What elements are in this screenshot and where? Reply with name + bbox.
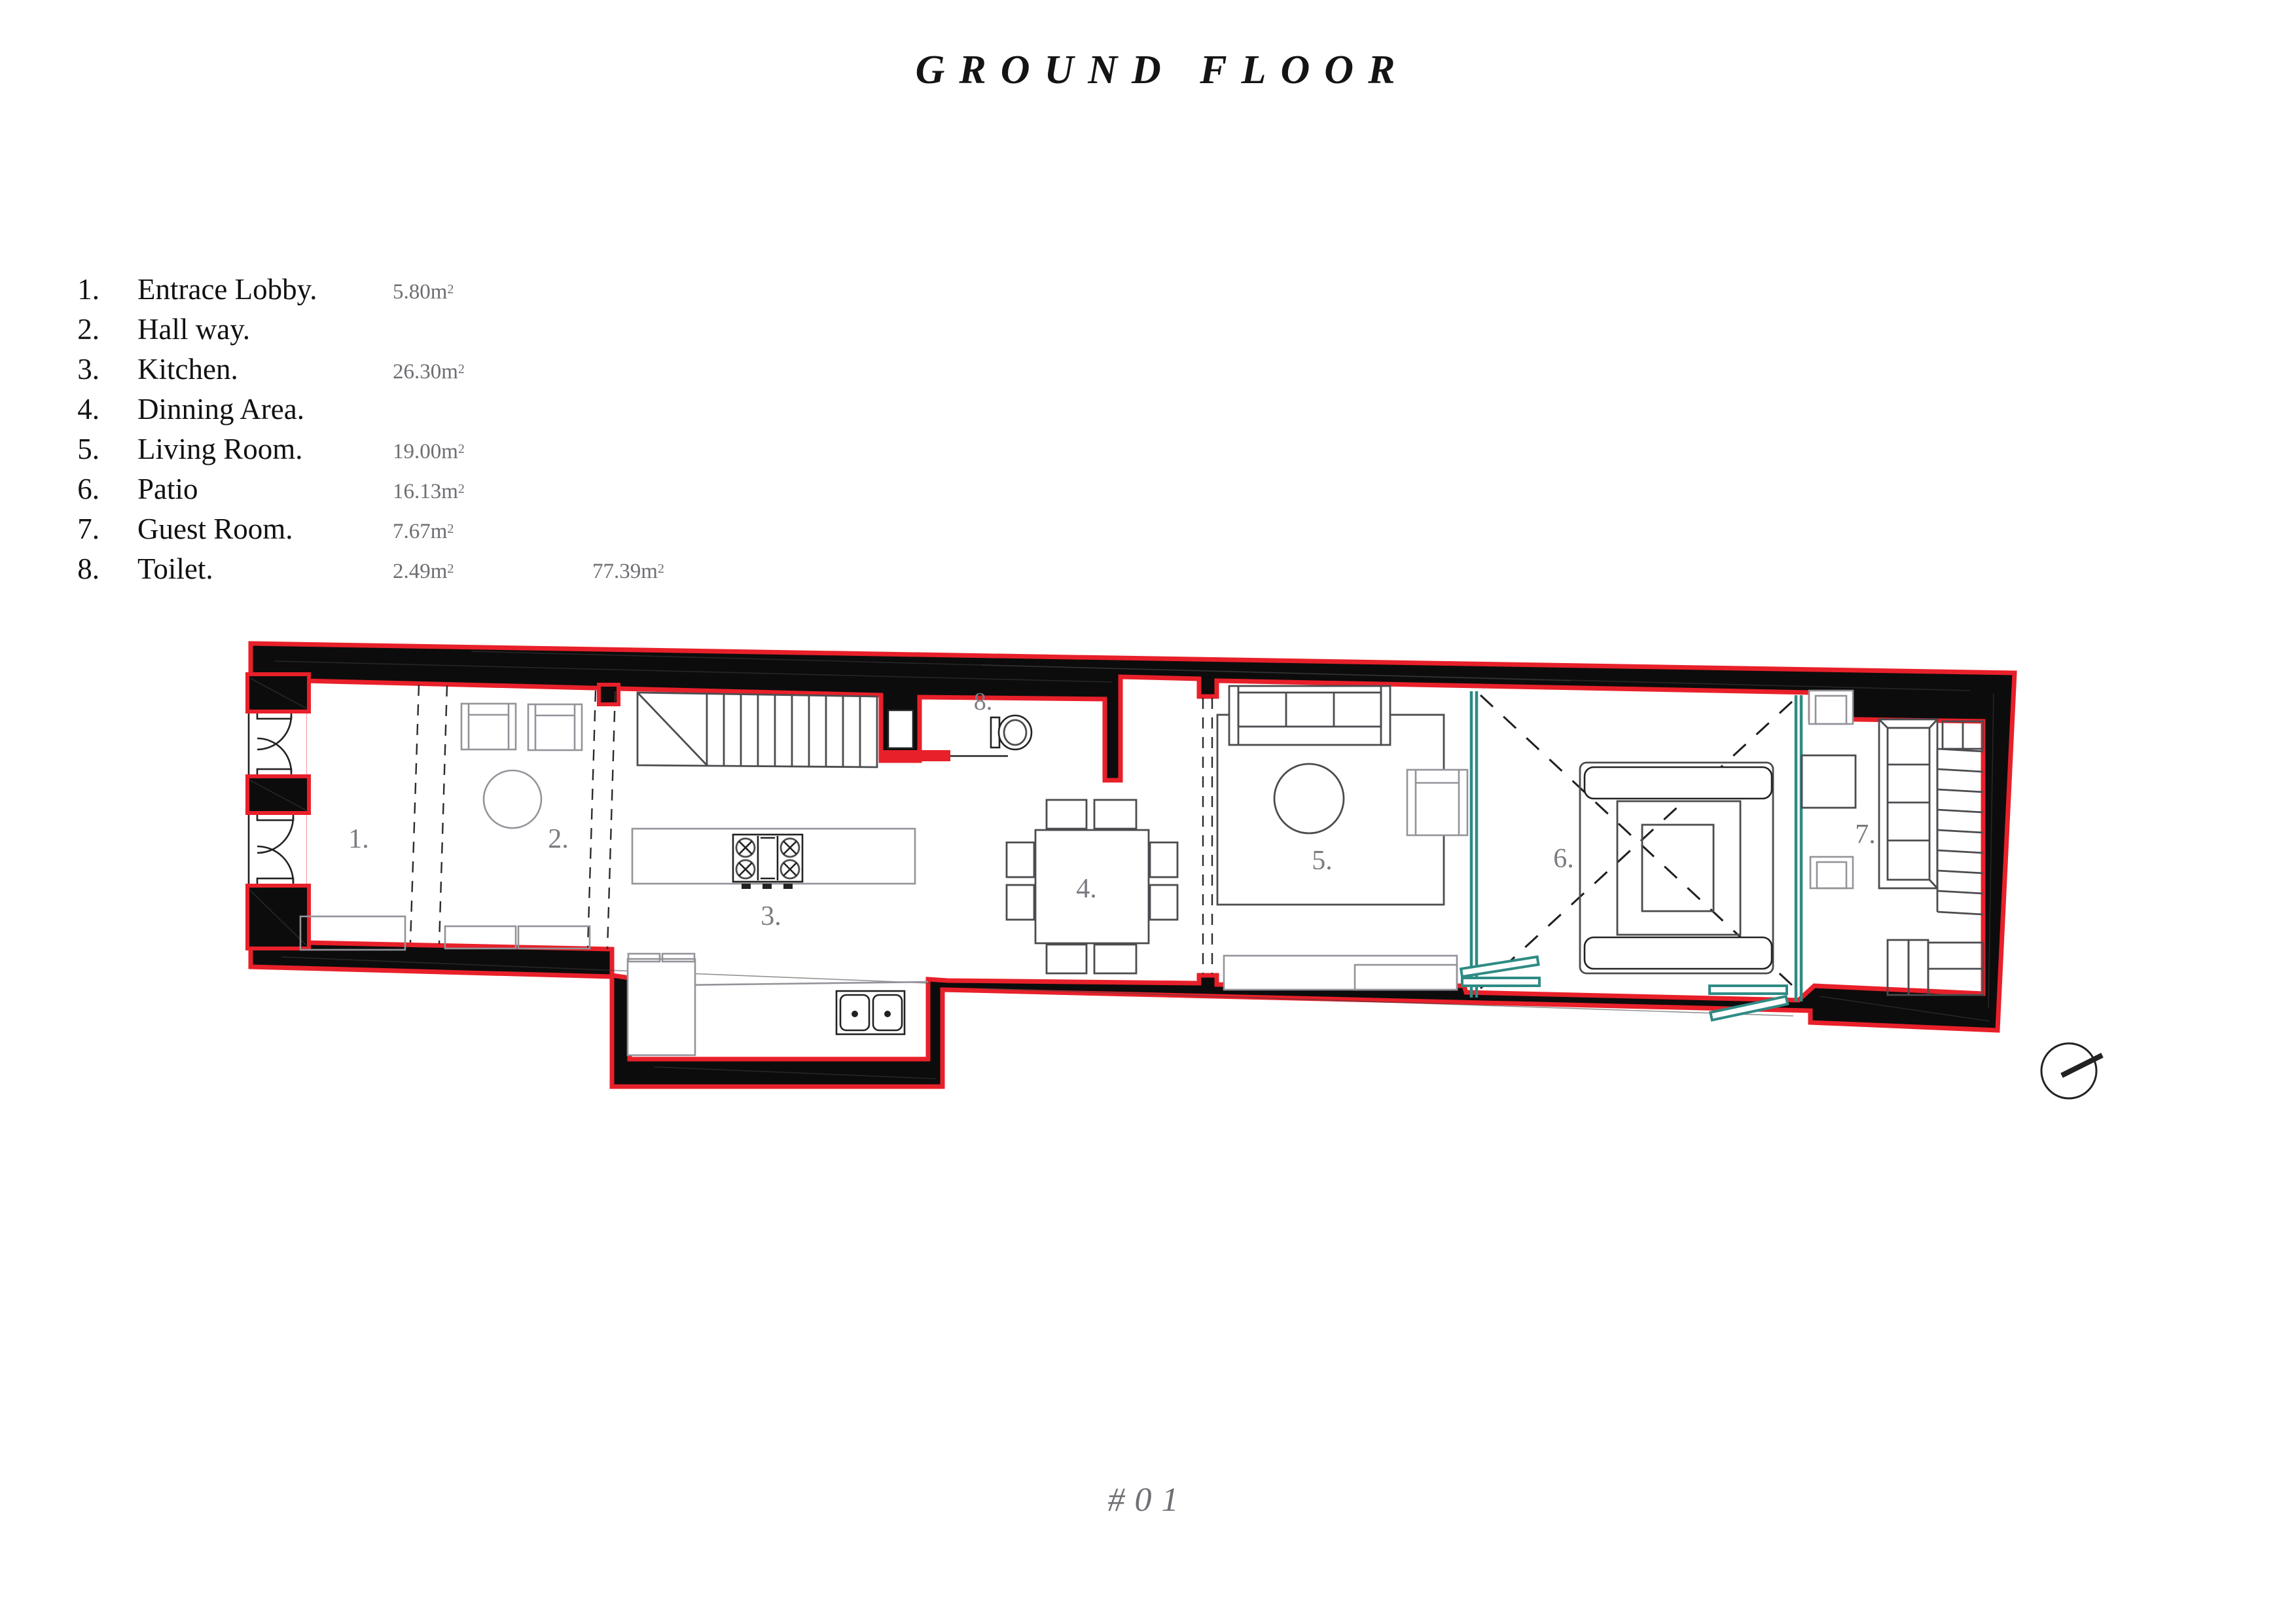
north-indicator xyxy=(2041,1043,2102,1098)
room-label-dining: 4. xyxy=(1076,873,1097,905)
patio xyxy=(1461,691,1801,1020)
room-label-guest: 7. xyxy=(1855,819,1876,850)
entrance-doors xyxy=(243,674,309,949)
stair-threshold xyxy=(881,750,1008,761)
living-furniture xyxy=(1217,686,1467,990)
room-label-kitchen: 3. xyxy=(761,901,781,932)
room-label-toilet: 8. xyxy=(974,687,993,716)
staircase xyxy=(637,693,913,767)
room-label-living: 5. xyxy=(1312,845,1333,876)
sheet-number: #01 xyxy=(0,1481,2296,1519)
kitchen-furniture xyxy=(628,829,928,1055)
room-label-entrance: 1. xyxy=(348,823,369,855)
toilet-fixture xyxy=(991,715,1031,749)
sheet: GROUND FLOOR 1.Entrace Lobby. 5.80m2 2.H… xyxy=(0,0,2296,1624)
guest-room-furniture xyxy=(1802,691,1983,995)
floor-plan-svg xyxy=(0,0,2296,1624)
room-label-hallway: 2. xyxy=(548,823,569,855)
room-label-patio: 6. xyxy=(1553,843,1574,875)
hallway-furniture xyxy=(300,704,590,950)
